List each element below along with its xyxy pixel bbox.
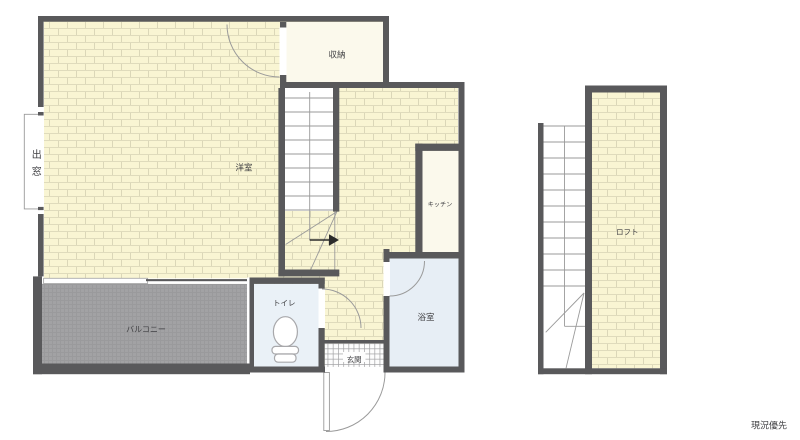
svg-text:現況優先: 現況優先 <box>751 420 787 431</box>
svg-text:出: 出 <box>32 148 42 161</box>
svg-text:トイレ: トイレ <box>273 299 296 308</box>
svg-text:収納: 収納 <box>328 50 345 60</box>
svg-text:キッチン: キッチン <box>428 202 453 209</box>
svg-text:バルコニー: バルコニー <box>126 325 166 334</box>
svg-text:洋室: 洋室 <box>235 163 253 173</box>
svg-text:浴室: 浴室 <box>417 312 435 322</box>
svg-text:ロフト: ロフト <box>616 228 639 237</box>
svg-text:玄関: 玄関 <box>347 354 362 364</box>
svg-text:窓: 窓 <box>32 165 42 178</box>
